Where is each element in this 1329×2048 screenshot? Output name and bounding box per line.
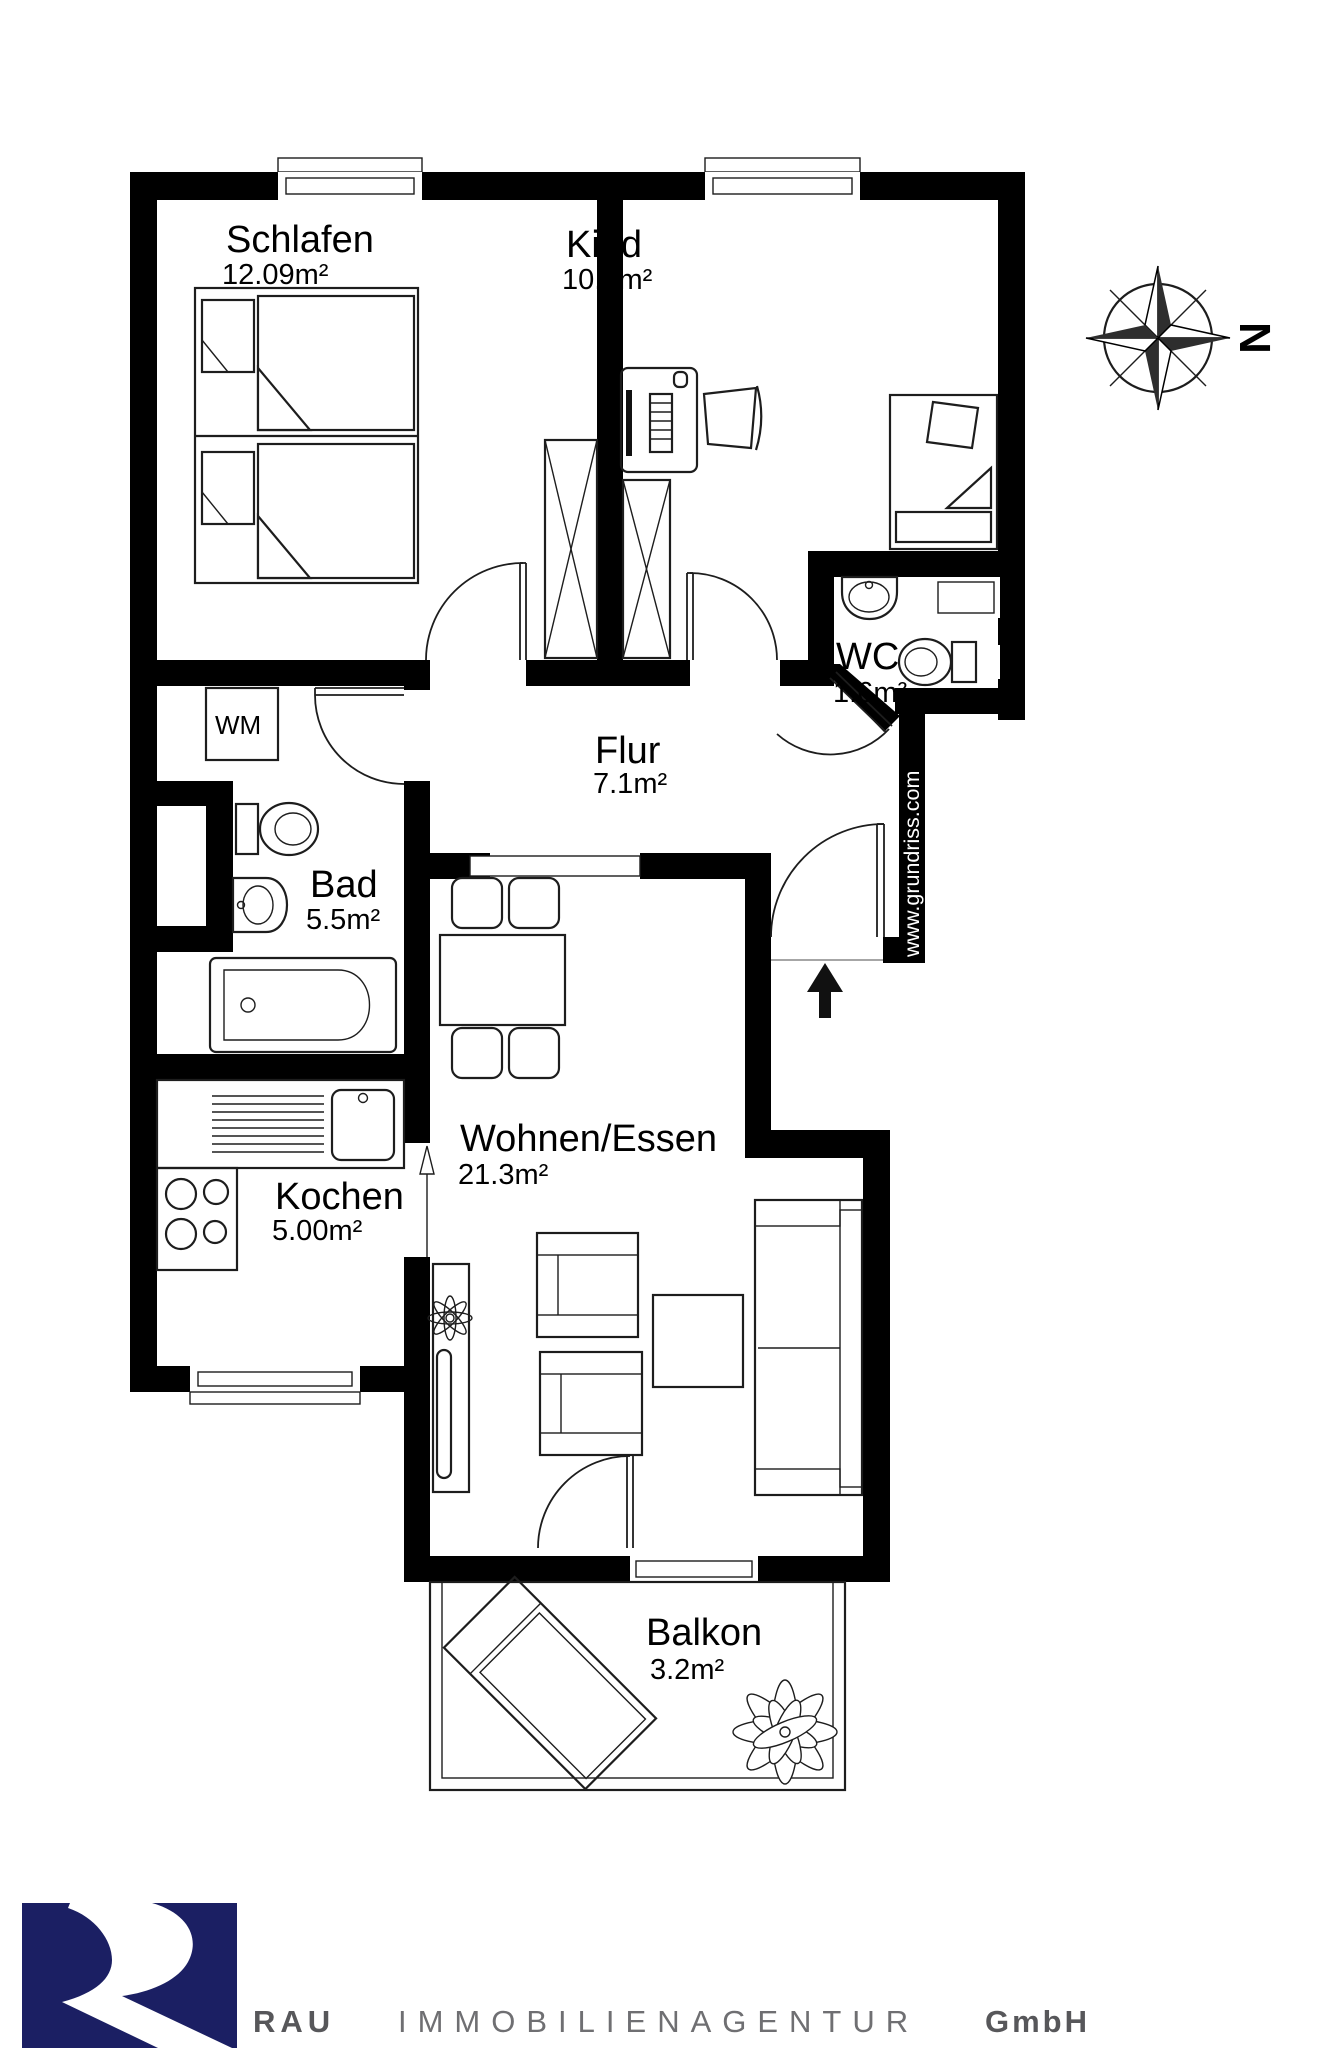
footer-company-gmbh: GmbH <box>985 2004 1090 2039</box>
plant-icon <box>733 1680 837 1784</box>
balcony-door-frame <box>630 1556 758 1582</box>
washing-machine-label: WM <box>215 710 261 740</box>
dining-chair <box>509 878 559 928</box>
area-kochen: 5.00m² <box>272 1215 363 1247</box>
armchair <box>537 1233 638 1337</box>
mouse-icon <box>674 372 687 387</box>
door-entrance <box>771 824 884 937</box>
bad-sink <box>233 878 287 932</box>
single-bed <box>890 395 997 549</box>
sofa <box>755 1200 862 1495</box>
lounger <box>444 1577 656 1789</box>
kitchen-passage-indicator <box>420 1146 434 1257</box>
room-balkon <box>430 1577 845 1790</box>
area-schlafen: 12.09m² <box>222 259 329 291</box>
area-wohnen: 21.3m² <box>458 1159 549 1191</box>
stove <box>157 1168 237 1270</box>
area-kind: 10.8m² <box>562 264 653 296</box>
floor-plan-page: WM <box>0 0 1329 2048</box>
kitchen-sink <box>212 1090 394 1160</box>
dining-chair <box>509 1028 559 1078</box>
label-kochen: Kochen <box>275 1176 404 1218</box>
wardrobe-icon <box>623 480 670 658</box>
washing-machine: WM <box>206 688 278 760</box>
door-bad <box>315 688 404 784</box>
dining-table <box>440 878 565 1078</box>
label-wohnen: Wohnen/Essen <box>460 1118 717 1160</box>
plant-icon <box>428 1296 472 1340</box>
double-bed <box>195 288 418 583</box>
wc-sink <box>842 577 897 619</box>
area-flur: 7.1m² <box>593 768 667 800</box>
label-balkon: Balkon <box>646 1612 762 1654</box>
area-bad: 5.5m² <box>306 904 380 936</box>
bathtub <box>210 958 396 1052</box>
flur-wohnen-opening <box>470 856 640 876</box>
wardrobe-icon <box>545 440 597 658</box>
area-balkon: 3.2m² <box>650 1654 724 1686</box>
floor-plan-svg: WM <box>0 0 1329 2048</box>
armchair <box>540 1352 642 1455</box>
wall-niche <box>157 806 206 926</box>
entry-arrow-icon <box>807 963 843 1018</box>
window-schlafen <box>278 158 422 200</box>
desk-chair <box>704 386 761 450</box>
window-kochen <box>190 1366 360 1404</box>
dining-chair <box>452 1028 502 1078</box>
footer-logo: RAU IMMOBILIENAGENTUR GmbH <box>22 1903 1090 2048</box>
door-balcony <box>538 1456 633 1548</box>
wc-toilet <box>899 639 1000 685</box>
dining-chair <box>452 878 502 928</box>
kitchen-counter <box>157 1080 404 1168</box>
compass-icon: N <box>1086 266 1279 410</box>
door-kind <box>687 573 777 660</box>
footer-company-immobilienagentur: IMMOBILIENAGENTUR <box>398 2004 919 2039</box>
label-schlafen: Schlafen <box>226 219 374 261</box>
coffee-table <box>653 1295 743 1387</box>
label-bad: Bad <box>310 864 378 906</box>
sideboard-tv <box>433 1264 469 1492</box>
label-wc: WC <box>836 636 899 678</box>
tv-icon <box>437 1350 451 1478</box>
room-schlafen <box>195 288 597 658</box>
compass-north-letter: N <box>1230 322 1279 354</box>
watermark-text: www.grundriss.com <box>900 771 924 958</box>
entrance-threshold <box>771 937 883 963</box>
label-flur: Flur <box>595 730 661 772</box>
monitor-icon <box>626 390 632 456</box>
footer-company-rau: RAU <box>253 2004 335 2039</box>
door-schlafen <box>426 563 526 660</box>
label-kind: Kind <box>566 224 642 266</box>
bad-toilet <box>236 803 318 855</box>
wc-niche <box>932 577 1000 618</box>
window-kind <box>705 158 860 200</box>
area-wc: 1.6m² <box>833 677 907 709</box>
desk <box>621 368 697 472</box>
